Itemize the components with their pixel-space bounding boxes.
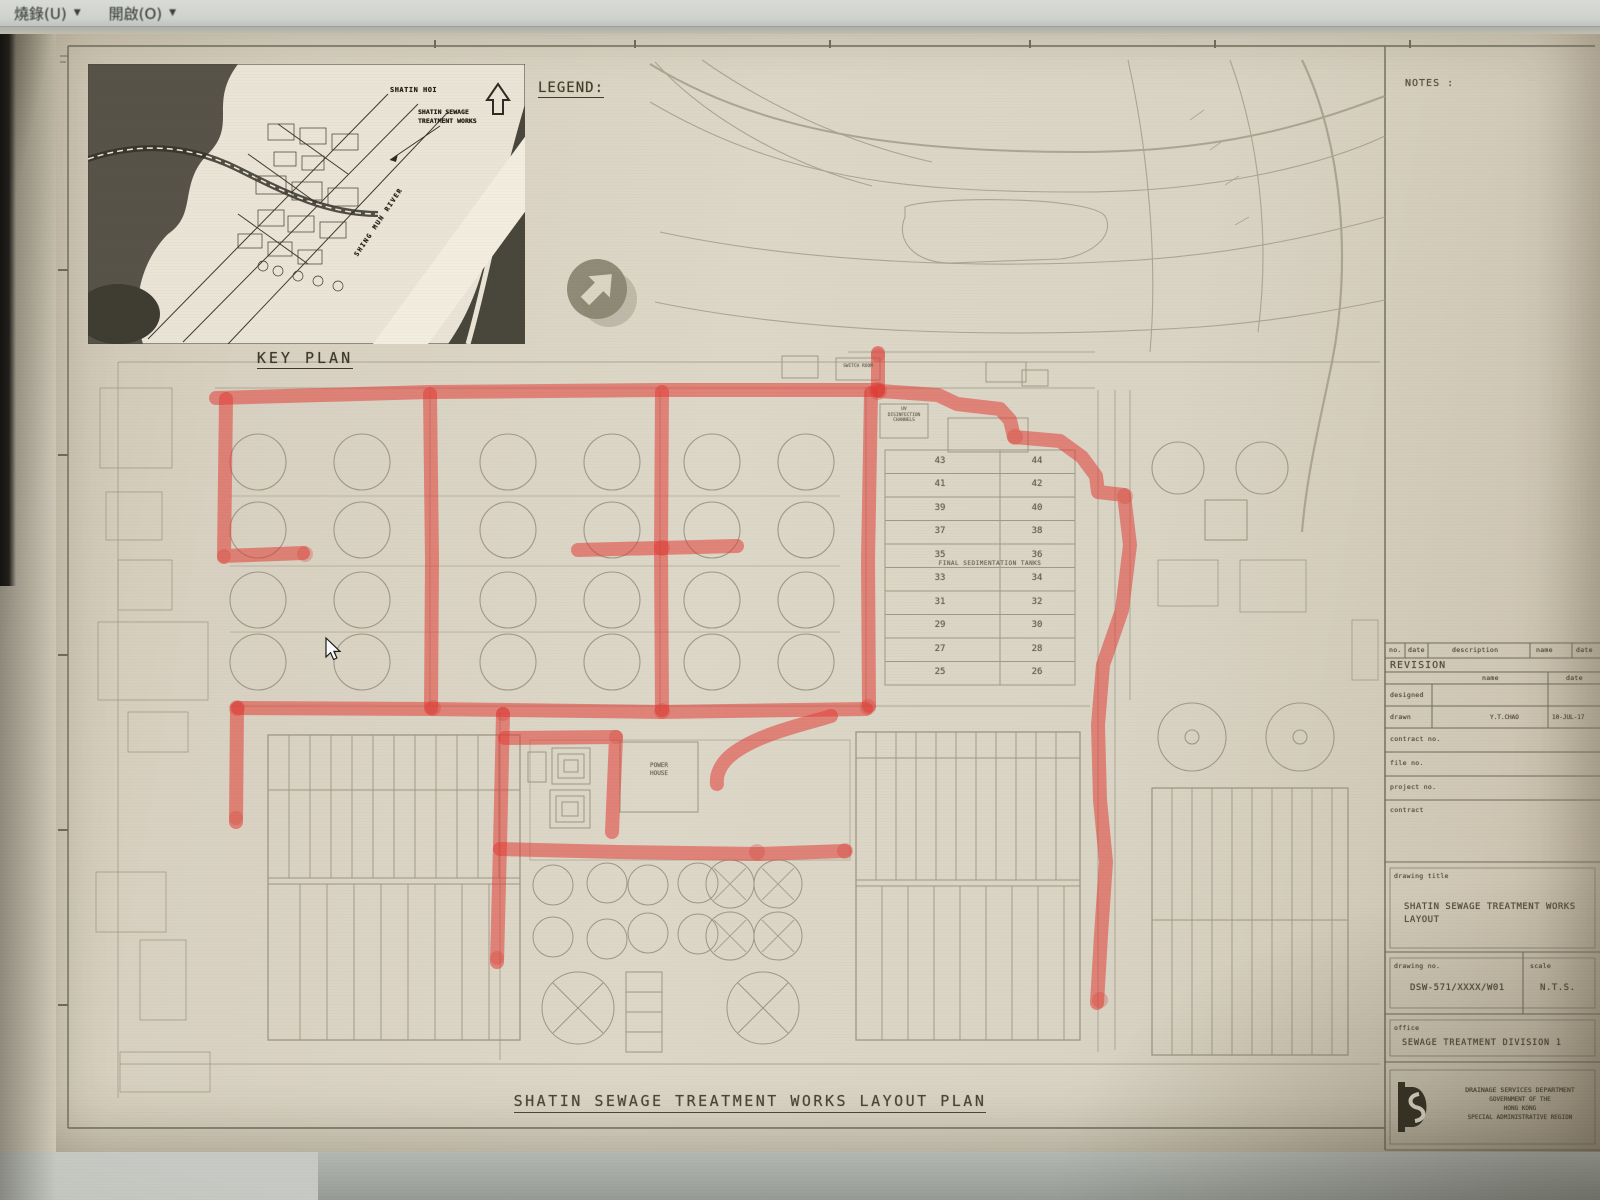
rev-col-date: date	[1566, 674, 1583, 682]
rev-header-no: no.	[1389, 646, 1402, 654]
department-line1: DRAINAGE SERVICES DEPARTMENT	[1440, 1086, 1600, 1094]
scale-label: scale	[1530, 962, 1551, 970]
tank-number: 26	[1002, 661, 1072, 684]
tank-number: 44	[1002, 450, 1072, 473]
menu-burn[interactable]: 燒錄(U) ▼	[0, 0, 95, 26]
key-plan-map	[88, 64, 525, 344]
screen-photo-of-monitor: { "menubar": { "items": [ {"label": "燒錄(…	[0, 0, 1600, 1200]
file-no-label: file no.	[1390, 759, 1424, 767]
drawing-title-label: drawing title	[1394, 872, 1449, 880]
digester-circles	[528, 740, 850, 1052]
north-arrow-icon	[567, 259, 637, 327]
department-line4: SPECIAL ADMINISTRATIVE REGION	[1440, 1114, 1600, 1121]
tank-number: 42	[1002, 473, 1072, 496]
drawing-title-line1: SHATIN SEWAGE TREATMENT WORKS	[1404, 902, 1576, 912]
drawn-date-value: 10-JUL-17	[1552, 714, 1585, 721]
contract-no-label: contract no.	[1390, 735, 1441, 743]
department-line3: HONG KONG	[1440, 1105, 1600, 1112]
aeration-blocks	[268, 732, 1348, 1055]
rev-header-name: name	[1536, 646, 1553, 654]
office-value: SEWAGE TREATMENT DIVISION 1	[1402, 1038, 1562, 1048]
office-label: office	[1394, 1024, 1419, 1032]
rev-header-description: description	[1452, 646, 1498, 654]
toolbar-shadow	[0, 26, 1600, 34]
designed-label: designed	[1390, 691, 1424, 699]
menu-bar: 燒錄(U) ▼ 開啟(O) ▼	[0, 0, 1600, 27]
dsd-logo	[1398, 1082, 1427, 1132]
key-plan-shatin-hoi-label: SHATIN HOI	[390, 86, 437, 94]
tank-number: 33	[895, 567, 985, 590]
key-plan-caption: KEY PLAN	[205, 349, 405, 367]
rev-header-date2: date	[1576, 646, 1593, 654]
rev-header-date: date	[1408, 646, 1425, 654]
power-house-label: POWER HOUSE	[622, 762, 696, 777]
contract-label: contract	[1390, 806, 1424, 814]
drawn-label: drawn	[1390, 713, 1411, 721]
tank-number: 38	[1002, 520, 1072, 543]
dropdown-arrow-icon: ▼	[74, 8, 81, 18]
legend-label: LEGEND:	[538, 80, 604, 96]
revision-label: REVISION	[1390, 660, 1446, 671]
menu-open-label: 開啟(O)	[109, 3, 163, 24]
key-plan-works-label-2: TREATMENT WORKS	[418, 117, 477, 125]
tank-number: 37	[895, 520, 985, 543]
drawing-no-label: drawing no.	[1394, 962, 1440, 970]
main-title: SHATIN SEWAGE TREATMENT WORKS LAYOUT PLA…	[430, 1092, 1070, 1110]
tank-number: 25	[895, 661, 985, 684]
tank-number: 34	[1002, 567, 1072, 590]
drawing-title-line2: LAYOUT	[1404, 915, 1440, 925]
tank-number: 30	[1002, 614, 1072, 637]
tank-number: 36	[1002, 544, 1072, 567]
drawn-name-value: Y.T.CHAO	[1490, 714, 1519, 721]
tank-circles	[230, 434, 1334, 771]
mouse-cursor[interactable]	[326, 638, 340, 660]
tank-number: 41	[895, 473, 985, 496]
menu-open[interactable]: 開啟(O) ▼	[95, 0, 190, 26]
rev-col-name: name	[1482, 674, 1499, 682]
tank-number: 27	[895, 638, 985, 661]
tank-number: 35	[895, 544, 985, 567]
tank-number: 40	[1002, 497, 1072, 520]
notes-label: NOTES :	[1405, 78, 1454, 89]
tank-number: 29	[895, 614, 985, 637]
drawing-no-value: DSW-571/XXXX/W01	[1410, 983, 1505, 993]
dropdown-arrow-icon: ▼	[169, 8, 176, 18]
tank-number: 31	[895, 591, 985, 614]
switch-room-label: SWITCH ROOM	[836, 364, 880, 370]
department-line2: GOVERNMENT OF THE	[1440, 1096, 1600, 1103]
tank-number: 32	[1002, 591, 1072, 614]
tank-number: 28	[1002, 638, 1072, 661]
project-no-label: project no.	[1390, 783, 1436, 791]
key-plan-inset	[88, 64, 525, 344]
menu-burn-label: 燒錄(U)	[14, 3, 67, 24]
key-plan-works-label-1: SHATIN SEWAGE	[418, 108, 469, 116]
uv-channels-label: UV DISINFECTION CHANNELS	[882, 407, 926, 424]
tank-number: 39	[895, 497, 985, 520]
tank-number: 43	[895, 450, 985, 473]
scale-value: N.T.S.	[1540, 983, 1576, 993]
site-roads	[118, 352, 1380, 1098]
